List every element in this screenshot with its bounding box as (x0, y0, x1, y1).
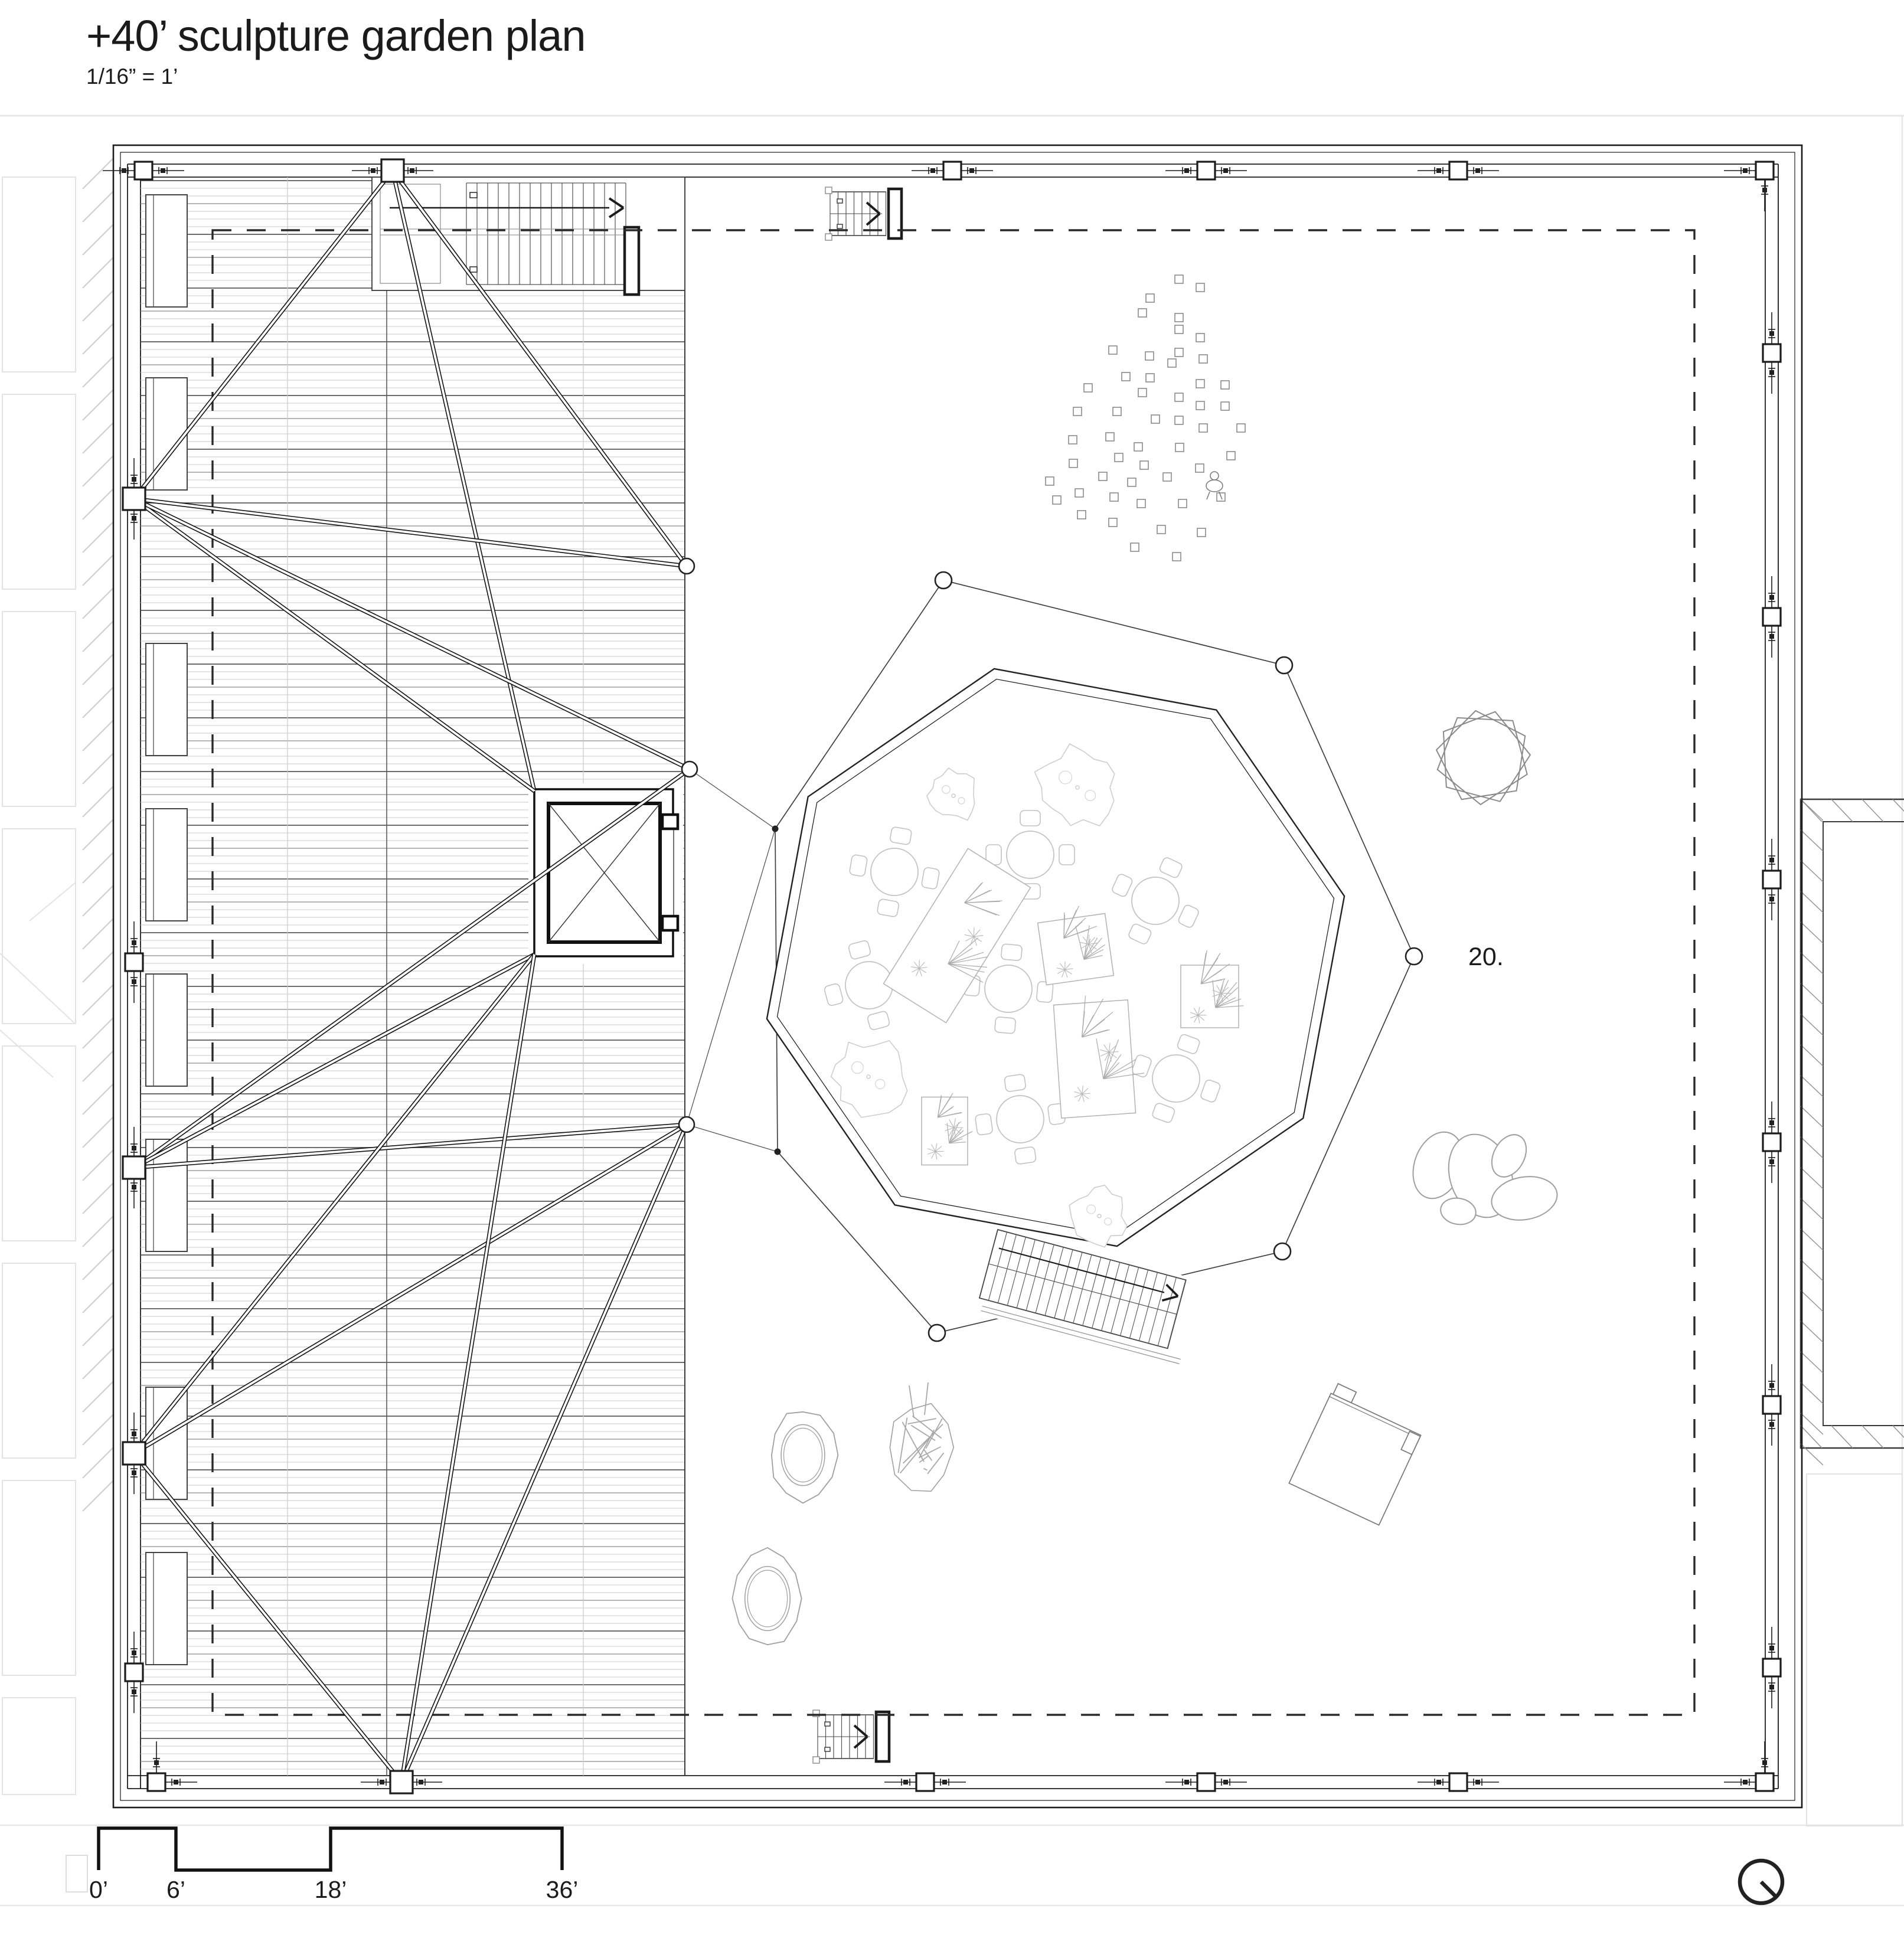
roof-ladder (825, 187, 902, 240)
floor-plan-drawing (0, 0, 1904, 1948)
ring-sculpture (732, 1548, 801, 1645)
adjacent-building-left (0, 177, 76, 1795)
page-title: +40’ sculpture garden plan (86, 11, 586, 61)
adjacent-building-right (1801, 799, 1904, 1826)
tilted-plinth-sculpture (1289, 1382, 1426, 1525)
stick-bundle-sculpture (890, 1382, 953, 1491)
scale-tick-18: 18’ (315, 1876, 347, 1904)
ring-sculpture (772, 1412, 838, 1503)
west-hatch-strip (83, 158, 113, 1511)
scale-tick-0: 0’ (89, 1876, 108, 1904)
north-arrow-icon (1740, 1861, 1782, 1903)
scale-note: 1/16” = 1’ (86, 64, 586, 89)
elevator-shaft (528, 783, 683, 964)
cable-trusses (134, 171, 778, 1782)
scale-tick-6: 6’ (166, 1876, 185, 1904)
drawing-sheet: +40’ sculpture garden plan 1/16” = 1’ 20… (0, 0, 1904, 1948)
roof-deck (141, 177, 685, 1776)
scale-tick-36: 36’ (546, 1876, 579, 1904)
plaza-stair (972, 1225, 1201, 1368)
sculpture-plaza (767, 669, 1344, 1247)
sculpture-area-label: 20. (1468, 943, 1504, 972)
roof-ladder (813, 1710, 889, 1763)
scatter-pavers (1046, 275, 1245, 561)
title-block: +40’ sculpture garden plan 1/16” = 1’ (86, 11, 586, 89)
person-figure (1206, 472, 1223, 499)
plaza-planter (922, 1093, 972, 1165)
